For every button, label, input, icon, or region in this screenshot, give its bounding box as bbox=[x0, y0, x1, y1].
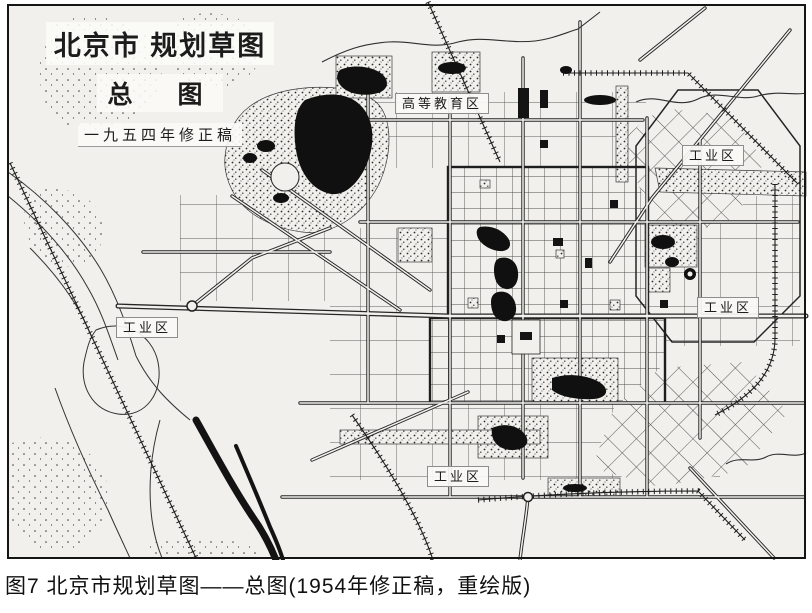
label-industrial-district-south: 工业区 bbox=[427, 466, 489, 487]
round-hill bbox=[271, 163, 299, 191]
map-title-line1: 北京市 规划草图 bbox=[46, 22, 275, 65]
label-industrial-district-ne: 工业区 bbox=[682, 145, 744, 166]
central-square bbox=[512, 320, 540, 354]
label-higher-education-district: 高等教育区 bbox=[395, 93, 489, 114]
figure-7-beijing-plan: 北京市 规划草图 总 图 一九五四年修正稿 高等教育区 工业区 工业区 工业区 … bbox=[0, 0, 812, 613]
label-industrial-district-west: 工业区 bbox=[116, 317, 178, 338]
map-title-line2: 总 图 bbox=[97, 74, 222, 112]
map-canvas: 北京市 规划草图 总 图 一九五四年修正稿 高等教育区 工业区 工业区 工业区 … bbox=[0, 0, 812, 560]
ringed-landmark-center bbox=[688, 272, 693, 277]
figure-caption: 图7 北京市规划草图——总图(1954年修正稿，重绘版) bbox=[5, 570, 531, 600]
map-title-line3: 一九五四年修正稿 bbox=[78, 123, 242, 147]
label-industrial-district-east: 工业区 bbox=[697, 297, 759, 318]
map-title-block: 北京市 规划草图 总 图 一九五四年修正稿 bbox=[34, 22, 286, 147]
